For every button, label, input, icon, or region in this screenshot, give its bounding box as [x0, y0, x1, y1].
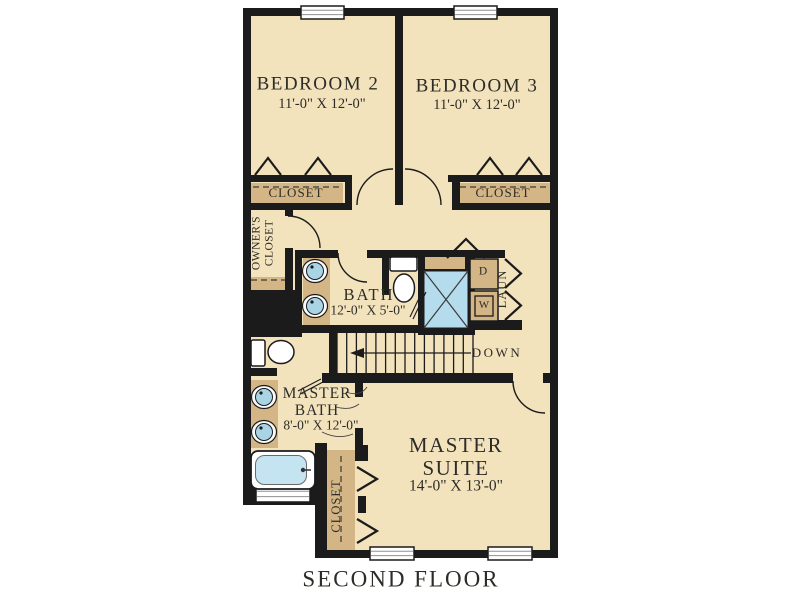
floorplan-page: BEDROOM 2 11'-0" X 12'-0" BEDROOM 3 11'-… [0, 0, 800, 600]
master-closet-label: CLOSET [330, 479, 344, 532]
window-icon [454, 6, 497, 19]
sink-icon [303, 295, 328, 318]
master-bath-line2: BATH [283, 402, 352, 419]
master-suite-label: MASTER SUITE [409, 434, 503, 480]
washer-label: W [479, 299, 489, 311]
void-space [243, 290, 302, 337]
stairs-down-label: DOWN [472, 346, 522, 360]
bedroom3-dims: 11'-0" X 12'-0" [433, 98, 520, 114]
sink-icon [303, 260, 328, 283]
bedroom3-label: BEDROOM 3 [416, 77, 539, 98]
dryer-label: D [479, 266, 487, 279]
window-icon [370, 547, 414, 560]
window-icon [301, 6, 344, 19]
master-bath-line1: MASTER [283, 385, 352, 402]
sink-icon [252, 421, 277, 444]
floorplan-drawing [0, 0, 800, 600]
master-suite-dims: 14'-0" X 13'-0" [409, 477, 503, 494]
window-icon [488, 547, 532, 560]
bathtub-icon [251, 451, 315, 489]
bath-dims: 12'-0" X 5'-0" [330, 304, 405, 319]
owners-closet-label: OWNER'S CLOSET [250, 216, 275, 270]
owners-closet-shelf [251, 277, 285, 291]
owners-closet-line1: OWNER'S [250, 216, 263, 270]
bedroom2-label: BEDROOM 2 [257, 75, 380, 96]
closet-bed2-label: CLOSET [268, 186, 323, 200]
owners-closet-line2: CLOSET [263, 216, 276, 270]
laundry-label: LAUN [496, 270, 510, 309]
closet-bed3-label: CLOSET [475, 186, 530, 200]
shower-icon [424, 257, 468, 328]
master-bath-label: MASTER BATH [283, 385, 352, 419]
master-suite-line1: MASTER [409, 434, 503, 457]
bedroom2-dims: 11'-0" X 12'-0" [278, 97, 365, 113]
sink-icon [252, 386, 277, 409]
page-title: SECOND FLOOR [302, 566, 499, 591]
bath-label: BATH [343, 286, 394, 304]
master-bath-dims: 8'-0" X 12'-0" [283, 419, 358, 434]
